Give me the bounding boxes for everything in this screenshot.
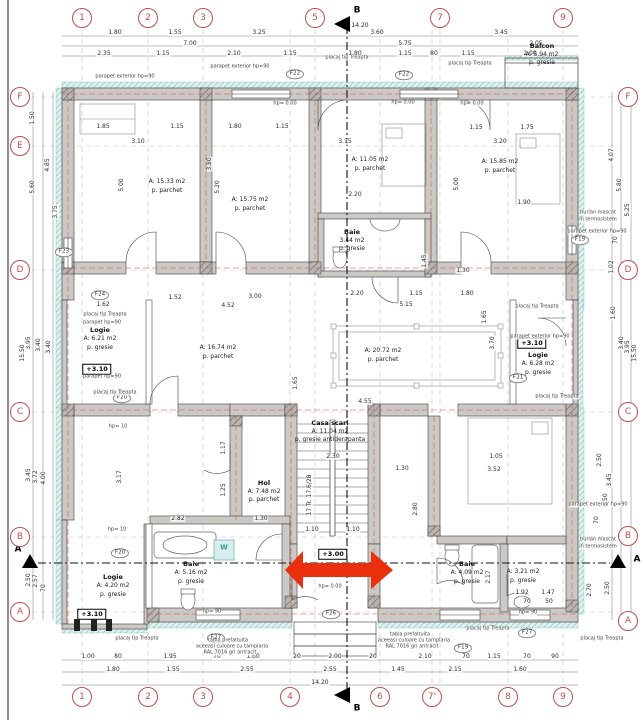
dimension-text: 1.45	[390, 667, 405, 673]
annotation-note: parapet hp=90	[83, 321, 121, 326]
dimension-text: 1.15	[169, 124, 184, 130]
dimension-text: 20	[292, 654, 302, 660]
room-area: p. parchet	[485, 168, 516, 174]
dimension-text: 4.55	[357, 399, 372, 405]
dimension-text: 1.45	[422, 253, 428, 268]
dimension-text: 3.20	[492, 139, 507, 145]
dimension-text: 4.52	[220, 303, 235, 309]
dimension-text: 1.95	[162, 654, 177, 660]
grid-bubble-bottom-9: 9	[553, 687, 573, 707]
dimension-text: 3.17	[117, 469, 123, 484]
dimension-text: 2.30	[325, 454, 340, 460]
annotation-note: in termosistem	[579, 218, 617, 223]
dimension-text: 3.25	[251, 30, 266, 36]
grid-bubble-left-F: F	[10, 87, 30, 107]
grid-bubble-right-B: B	[618, 526, 638, 546]
dimension-text: 1.30	[394, 466, 409, 472]
dimension-text: 1.62	[95, 302, 110, 308]
dimension-text: 1.50	[30, 110, 36, 125]
annotation-note: parapet exterior hp=90	[567, 230, 626, 235]
dimension-text: 1.80	[105, 667, 120, 673]
room-area: A: 6.28 m2	[522, 361, 555, 367]
annotation-note: placaj tip Treapta	[580, 637, 623, 642]
grid-bubble-top-5: 5	[305, 8, 325, 28]
washing-machine-label: W	[220, 545, 228, 552]
annotation-note: parapet exterior hp=90	[210, 65, 269, 70]
dimension-text: 70	[41, 583, 47, 593]
room-area: p. gresie	[87, 345, 113, 351]
dimension-text: 1.47	[540, 590, 555, 596]
room-area: A: 5.16 m2	[175, 570, 208, 576]
room-area: A: 15.75 m2	[232, 197, 269, 203]
annotation-note: hp= 0.00	[391, 101, 414, 106]
dimension-text: 1.15	[282, 51, 297, 57]
dimension-text: 15.50	[632, 343, 638, 362]
dimension-text: 2.50	[597, 452, 603, 467]
room-name: Logie	[103, 574, 123, 581]
dimension-text: 70	[522, 599, 532, 605]
dimension-text: 15.50	[20, 343, 26, 362]
annotation-note: hp= 0.00	[318, 585, 341, 590]
dimension-text: 70	[461, 654, 471, 660]
dimension-text: 3.00	[247, 294, 262, 300]
dimension-text: 3.45	[607, 472, 613, 487]
dimension-text: 70	[613, 235, 619, 245]
dimension-text: 17 Tr. 17.6/28	[307, 473, 313, 516]
room-area: p. gresie	[510, 578, 536, 584]
room-name: Logie	[90, 327, 110, 334]
room-area: p. parchet	[249, 497, 280, 503]
room-name: Baie	[183, 561, 199, 568]
room-area: p. gresie	[529, 60, 555, 66]
annotation-note: placaj tip Treapta	[535, 395, 578, 400]
dimension-text: 1.25	[221, 482, 227, 497]
room-area: p. parchet	[152, 188, 183, 194]
annotation-note: RAL 7016 gri antracit	[203, 651, 256, 656]
dimension-text: 2.82	[170, 516, 185, 522]
room-area: p. gresie	[100, 592, 126, 598]
dimension-text: 3.72	[33, 469, 39, 484]
grid-bubble-left-B: B	[10, 527, 30, 547]
dimension-text: 1.65	[293, 375, 299, 390]
dimension-text: 70	[594, 515, 600, 525]
dimension-text: 5.80	[617, 177, 623, 192]
annotation-note: parapet hp=90	[83, 375, 121, 380]
room-area: p. gresie	[454, 579, 480, 585]
grid-bubble-top-7: 7	[430, 8, 450, 28]
dimension-text: 7.00	[182, 41, 197, 47]
floor-plan: AABB1.801.553.253.603.457.005.752.0514.2…	[0, 0, 643, 720]
dimension-text: 1.55	[165, 667, 180, 673]
grid-bubble-top-1: 1	[72, 8, 92, 28]
dimension-text: 1.30	[455, 268, 470, 274]
annotation-note: hp= 0.00	[460, 102, 483, 107]
room-area: 3.44 m2	[340, 238, 365, 244]
dimension-text: 2.35	[96, 51, 111, 57]
dimension-text: 1.15	[486, 654, 501, 660]
window-tag: F27	[518, 628, 536, 638]
dimension-text: 1.60	[512, 667, 527, 673]
annotation-note: placaj tip Treapta	[115, 637, 158, 642]
annotation-note: placaj tip Treapta	[83, 313, 126, 318]
dimension-text: 5.00	[454, 176, 460, 191]
room-area: A: 3.21 m2	[507, 569, 540, 575]
room-area: p. parchet	[203, 354, 234, 360]
dimension-text: 1.10	[345, 527, 360, 533]
dimension-text: 1.60	[611, 305, 617, 320]
room-area: A: 16.74 m2	[200, 345, 237, 351]
room-name: Logie	[528, 352, 548, 359]
room-area: A: 15.33 m2	[149, 179, 186, 185]
grid-bubble-bottom-3: 3	[193, 687, 213, 707]
room-area: A: 5.94 m2	[526, 52, 559, 58]
dimension-text: 3.45	[493, 30, 508, 36]
dimension-text: 1.15	[274, 124, 289, 130]
dimension-text: 14.20	[310, 680, 329, 686]
dimension-text: 3.40	[36, 337, 42, 352]
grid-bubble-left-C: C	[10, 402, 30, 422]
grid-bubble-left-D: D	[10, 260, 30, 280]
room-area: p. gresie antiderapanta	[295, 437, 365, 443]
dimension-text: 2.10	[417, 654, 432, 660]
dimension-text: 4.00	[41, 470, 47, 485]
room-area: p. gresie	[178, 579, 204, 585]
dimension-text: 3.80	[207, 156, 213, 171]
dimension-text: 3.70	[490, 335, 496, 350]
dimension-text: 1.65	[482, 309, 488, 324]
annotation-note: burlan mascat	[580, 211, 616, 216]
window-tag: F22	[286, 69, 304, 79]
dimension-text: 2.17	[486, 569, 492, 584]
room-name: Hol	[258, 480, 270, 487]
annotation-note: parapet exterior hp=90	[510, 335, 569, 340]
grid-bubble-right-C: C	[618, 402, 638, 422]
dimension-text: 3.40	[46, 339, 52, 354]
window-tag: F24	[91, 290, 109, 300]
grid-bubble-left-E: E	[10, 136, 30, 156]
window-tag: F21	[509, 373, 527, 383]
room-area: A: 7.48 m2	[248, 489, 281, 495]
dimension-text: 14.20	[350, 23, 369, 29]
dimension-text: 4.07	[609, 147, 615, 162]
section-letter: B	[354, 705, 361, 714]
room-name: Balcon	[530, 43, 555, 50]
dimension-text: 80	[113, 654, 123, 660]
dimension-text: 50	[544, 599, 554, 605]
dimension-text: 2.00	[327, 654, 342, 660]
dimension-text: 1.15	[460, 51, 475, 57]
dimension-text: 2.50	[605, 580, 611, 595]
grid-bubble-bottom-1: 1	[72, 687, 92, 707]
grid-bubble-bottom-4: 4	[280, 687, 300, 707]
dimension-text: 2.15	[447, 667, 462, 673]
dimension-text: 5.25	[625, 202, 631, 217]
dimension-text: 3.52	[486, 467, 501, 473]
level-marker: +3.10	[77, 609, 106, 620]
dimension-text: 1.05	[488, 454, 503, 460]
dimension-text: 1.55	[167, 30, 182, 36]
dimension-text: 1.00	[80, 654, 95, 660]
room-name: Baie	[344, 229, 360, 236]
dimension-text: 1.30	[253, 516, 268, 522]
grid-bubble-bottom-6: 6	[370, 687, 390, 707]
annotation-note: in termosistem	[579, 545, 617, 550]
dimension-text: 2.70	[587, 582, 593, 597]
dimension-text: 3.75	[53, 204, 59, 219]
window-tag: F19	[454, 643, 472, 653]
room-area: A: 4.20 m2	[97, 583, 130, 589]
annotation-note: hp= 90	[519, 611, 537, 616]
dimension-text: 2.55	[239, 667, 254, 673]
grid-bubble-bottom-2: 2	[138, 687, 158, 707]
grid-bubble-top-3: 3	[193, 8, 213, 28]
dimension-text: 2.20	[347, 192, 362, 198]
annotation-note: hp= 90	[203, 610, 221, 615]
grid-bubble-top-2: 2	[138, 8, 158, 28]
dimension-text: 1.17	[221, 440, 227, 455]
grid-bubble-right-F: F	[618, 87, 638, 107]
room-area: A: 15.85 m2	[482, 159, 519, 165]
dimension-text: 1.15	[408, 291, 423, 297]
dimension-text: 1.15	[155, 51, 170, 57]
dimension-text: 3.95	[26, 335, 32, 350]
dimension-text: 5.75	[397, 41, 412, 47]
room-area: p. gresie	[525, 370, 551, 376]
dimension-text: 70	[522, 654, 532, 660]
dimension-text: 1.02	[609, 259, 615, 274]
dimension-text: 2.55	[322, 667, 337, 673]
dimension-text: 1.15	[468, 125, 483, 131]
room-name: Baie	[459, 561, 475, 568]
annotation-note: parapet exterior hp=90	[568, 503, 627, 508]
grid-bubble-bottom-7': 7'	[422, 687, 442, 707]
annotation-note: hp= 0.00	[273, 102, 296, 107]
dimension-text: 5.60	[30, 179, 36, 194]
grid-bubble-bottom-8: 8	[498, 687, 518, 707]
dimension-text: 2.80	[413, 501, 419, 516]
section-letter: B	[354, 7, 361, 16]
annotation-note: hp= 10	[108, 528, 126, 533]
room-area: A: 6.21 m2	[84, 336, 117, 342]
dimension-text: 3.15	[337, 139, 352, 145]
dimension-text: 3.60	[369, 30, 384, 36]
dimension-text: 1.80	[459, 291, 474, 297]
annotation-note: placaj tip Treapta	[448, 62, 491, 67]
grid-bubble-right-D: D	[618, 260, 638, 280]
dimension-text: 1.92	[514, 590, 529, 596]
annotation-note: placaj tip Treapta	[515, 305, 558, 310]
annotation-note: placaj tip Treapta	[325, 56, 368, 61]
dimension-text: 1.10	[304, 527, 319, 533]
grid-bubble-top-9: 9	[553, 8, 573, 28]
annotation-note: hp= 10	[109, 425, 127, 430]
room-area: p. parchet	[355, 166, 386, 172]
grid-bubble-right-A: A	[618, 611, 638, 631]
window-tag: F19	[571, 235, 589, 245]
dimension-text: 90	[550, 654, 560, 660]
window-tag: F20	[111, 548, 129, 558]
dimension-text: 1.80	[227, 124, 242, 130]
grid-bubble-left-A: A	[10, 602, 30, 622]
window-tag: F26	[322, 609, 340, 619]
room-area: A: 20.72 m2	[365, 348, 402, 354]
annotation-note: RAL 7016 gri antracit	[385, 645, 438, 650]
room-name: Casa scari	[311, 420, 348, 427]
window-tag: F22	[395, 70, 413, 80]
dimension-text: 2.57	[33, 573, 39, 588]
room-area: p. parchet	[368, 357, 399, 363]
dimension-text: 1.15	[397, 51, 412, 57]
section-letter: A	[634, 556, 641, 565]
dimension-text: 1.52	[167, 295, 182, 301]
level-marker: +3.00	[318, 549, 347, 560]
dimension-text: 1.75	[519, 125, 534, 131]
dimension-text: 3.10	[130, 139, 145, 145]
room-area: A: 4.09 m2	[451, 570, 484, 576]
annotation-note: parapet exterior hp=90	[95, 75, 154, 80]
dimension-text: 80	[429, 51, 439, 57]
dimension-text: 2.10	[226, 51, 241, 57]
room-area: A: 11.05 m2	[352, 157, 389, 163]
dimension-text: 1.85	[95, 124, 110, 130]
dimension-text: 2.20	[349, 291, 364, 297]
annotation-note: burlan mascat	[580, 538, 616, 543]
dimension-text: 5.15	[398, 302, 413, 308]
annotation-note: placaj tip Treapta	[466, 627, 509, 632]
label-layer: AABB1.801.553.253.603.457.005.752.0514.2…	[0, 0, 643, 720]
dimension-text: 5.20	[215, 179, 221, 194]
dimension-text: 5.00	[119, 177, 125, 192]
dimension-text: 1.90	[516, 200, 531, 206]
dimension-text: 4.85	[45, 157, 51, 172]
dimension-text: 20	[368, 654, 378, 660]
room-area: A: 11.04 m2	[312, 429, 349, 435]
annotation-note: placaj tip Treapta	[93, 391, 136, 396]
window-tag: F23	[55, 247, 73, 257]
room-area: p. gresie	[339, 246, 365, 252]
dimension-text: 1.80	[107, 30, 122, 36]
room-area: p. parchet	[235, 206, 266, 212]
